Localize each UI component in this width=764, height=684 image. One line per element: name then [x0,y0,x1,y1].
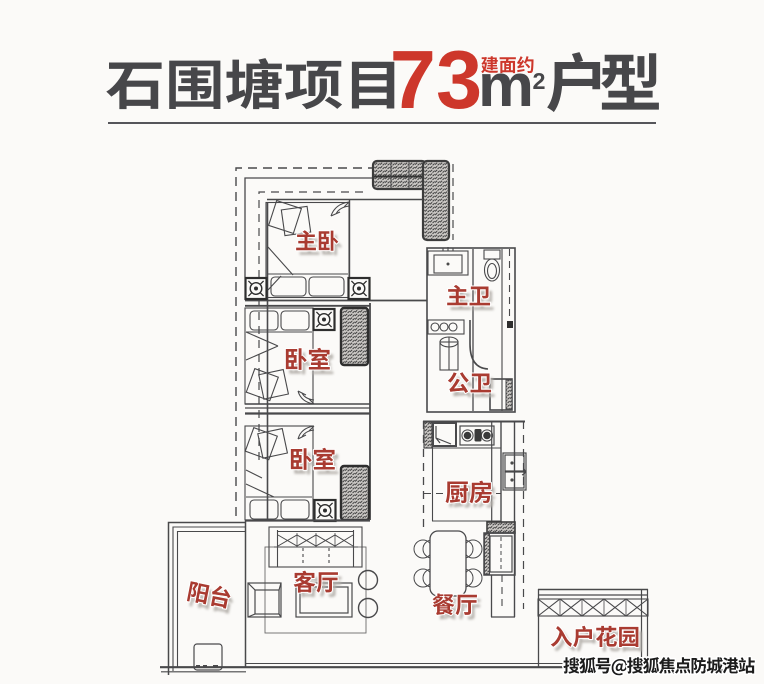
svg-text:m: m [478,52,534,119]
svg-text:73: 73 [390,33,482,126]
svg-text:2: 2 [533,68,546,94]
